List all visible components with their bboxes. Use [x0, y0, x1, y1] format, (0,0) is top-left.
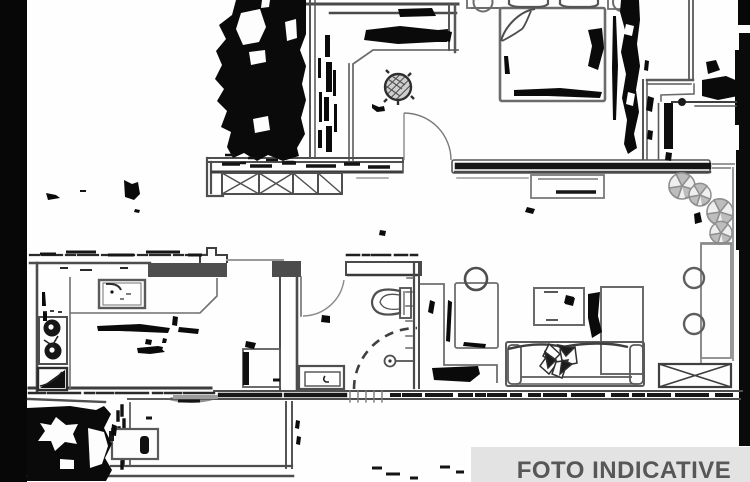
svg-text:FOTO INDICATIVE: FOTO INDICATIVE: [517, 457, 732, 482]
